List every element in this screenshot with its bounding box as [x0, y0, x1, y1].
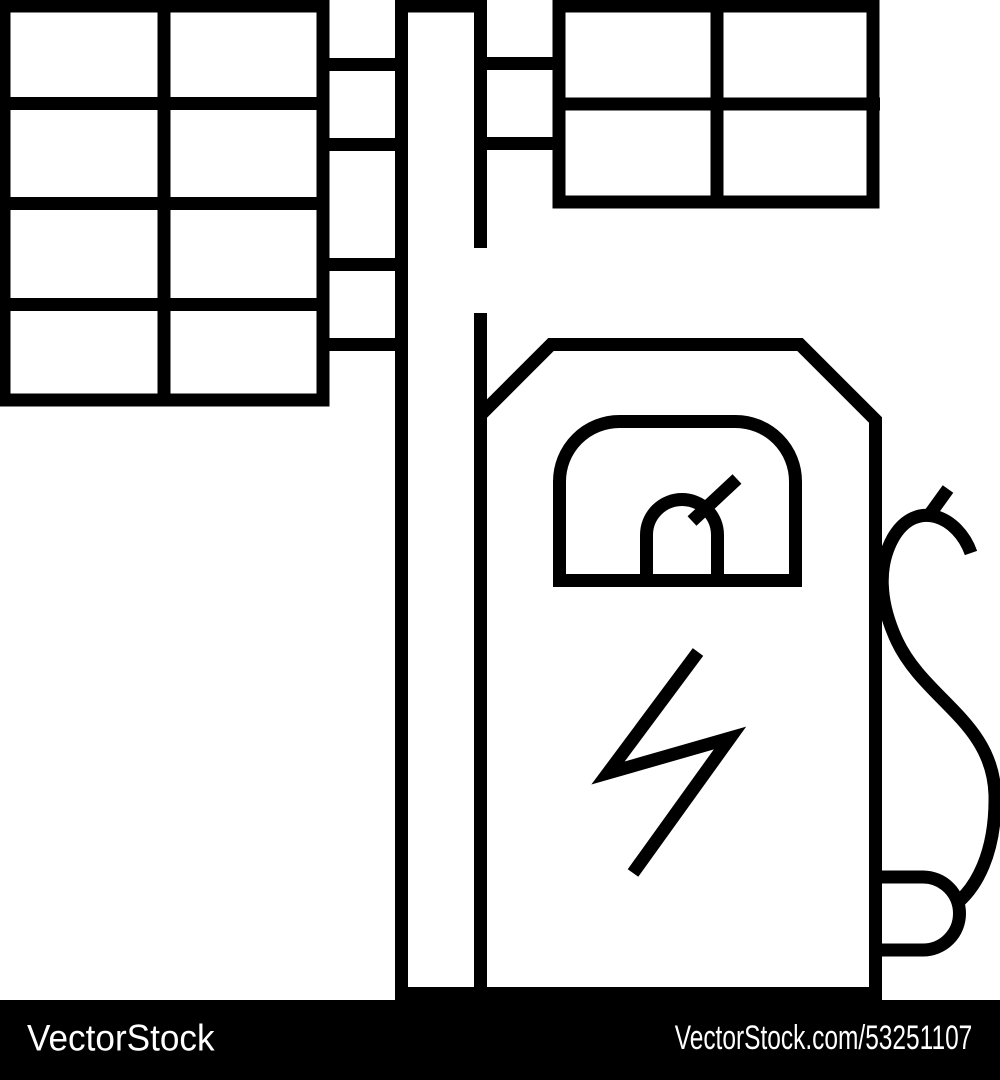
utility-pole	[395, 0, 487, 994]
charging-cable	[882, 515, 995, 903]
solar-panel-right-connector	[487, 64, 559, 144]
vectorstock-logo-text: VectorStock	[27, 1017, 215, 1059]
artboard: VectorStock VectorStock.com/53251107	[0, 0, 1000, 1080]
image-url-text: VectorStock.com/53251107	[674, 1019, 972, 1058]
solar-panel-left	[0, 0, 323, 400]
watermark-footer: VectorStock VectorStock.com/53251107	[0, 1000, 1000, 1080]
solar-charging-station-icon	[0, 0, 1000, 1000]
solar-panel-left-connector	[317, 65, 402, 345]
cable-holster	[882, 877, 959, 950]
icon-stage	[0, 0, 1000, 1000]
lightning-bolt-icon	[608, 652, 730, 873]
solar-panel-right	[553, 0, 880, 202]
